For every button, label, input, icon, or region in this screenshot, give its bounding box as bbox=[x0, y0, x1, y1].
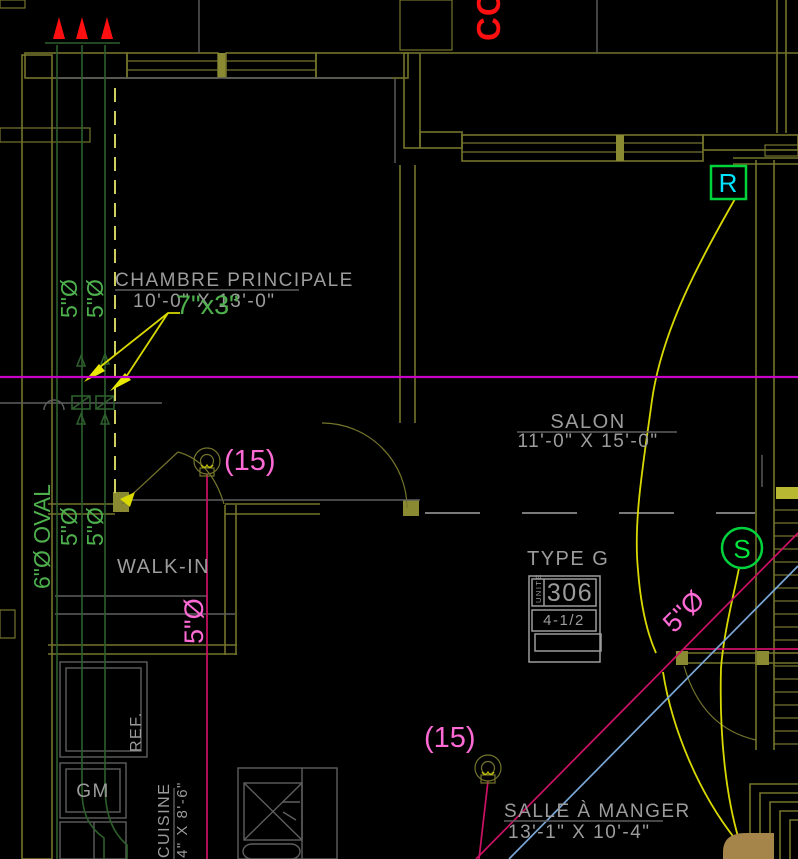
oval-duct-label: 6"Ø OVAL bbox=[29, 484, 55, 589]
door-arc-chambre bbox=[322, 423, 407, 508]
window-right-band bbox=[462, 135, 703, 161]
wall-nib-bright bbox=[776, 487, 798, 499]
walkin-name: WALK-IN bbox=[117, 556, 210, 578]
salon-name: SALON bbox=[550, 411, 625, 433]
cuisine-name: CUISINE bbox=[156, 783, 173, 858]
unit-number: 306 bbox=[547, 579, 593, 607]
flex-duct-from-R bbox=[637, 199, 735, 653]
dishwasher-symbol bbox=[244, 783, 302, 840]
window-top-2 bbox=[226, 53, 316, 78]
cad-floor-plan-canvas[interactable]: R S UNITÉ 306 4-1/2 TYPE G CHAMBRE PRINC… bbox=[0, 0, 798, 859]
leader-arrowhead-1 bbox=[84, 364, 105, 382]
datum-arc bbox=[44, 400, 64, 410]
cuisine-dims: 4" X 8'-6" bbox=[174, 781, 191, 858]
sink bbox=[243, 844, 300, 859]
count-label-1: (15) bbox=[224, 445, 276, 477]
pink-annotations: (15) (15) 5"Ø 5"Ø bbox=[179, 445, 710, 754]
fridge-label: REF. bbox=[128, 711, 145, 752]
kitchen-fixtures bbox=[60, 662, 337, 859]
door-jamb-salle-l bbox=[676, 651, 688, 665]
shaft-box bbox=[400, 0, 452, 50]
unit-hatch-bar bbox=[535, 634, 601, 651]
riser-line-2 bbox=[82, 45, 104, 859]
floor-plan-drawing: R S UNITÉ 306 4-1/2 TYPE G CHAMBRE PRINC… bbox=[0, 0, 798, 859]
salle-dims: 13'-1" X 10'-4" bbox=[508, 822, 651, 843]
wall-fire-strip bbox=[0, 128, 90, 142]
wall-top-left bbox=[25, 53, 127, 78]
chambre-inner-line bbox=[55, 78, 395, 163]
walkin-duct-label: 5"Ø bbox=[179, 598, 209, 644]
door-jamb-salle-r bbox=[755, 651, 769, 665]
wall-corner-down bbox=[404, 53, 420, 148]
door-jamb-chambre bbox=[403, 500, 419, 516]
window-mullion bbox=[218, 53, 226, 78]
red-riser-arrows bbox=[53, 17, 113, 39]
window-top-1 bbox=[127, 53, 218, 78]
wall-top-right bbox=[703, 135, 798, 150]
riser-label-4: 5"Ø bbox=[82, 507, 108, 546]
supply-tag-letter: S bbox=[733, 534, 750, 564]
salle-name: SALLE À MANGER bbox=[504, 801, 691, 822]
co-riser-label: CO bbox=[470, 0, 507, 41]
unit-label: UNITÉ bbox=[534, 573, 543, 603]
unit-fraction: 4-1/2 bbox=[543, 612, 585, 629]
wall-left-piece bbox=[0, 610, 15, 638]
riser-label-1: 5"Ø bbox=[56, 279, 82, 318]
wall-stub bbox=[420, 132, 462, 148]
counter-box bbox=[238, 768, 337, 859]
count-label-2: (15) bbox=[424, 722, 476, 754]
grid-lines-top bbox=[199, 0, 597, 53]
chambre-name: CHAMBRE PRINCIPALE bbox=[115, 270, 354, 291]
return-tag-symbol[interactable]: R bbox=[711, 166, 746, 199]
wall-r-tag bbox=[733, 158, 798, 164]
gm-label: GM bbox=[76, 781, 110, 802]
wall-left bbox=[22, 55, 52, 859]
grille-size-label: 7"x3" bbox=[176, 290, 239, 320]
wall-salle-top bbox=[683, 653, 798, 663]
wall-chambre-right bbox=[400, 165, 415, 423]
grille-leader-lines bbox=[100, 313, 180, 377]
riser-label-2: 5"Ø bbox=[82, 279, 108, 318]
unit-type-title: TYPE G bbox=[527, 548, 609, 570]
floor-grille-fan bbox=[723, 833, 774, 859]
sprinkler-head-2[interactable] bbox=[475, 755, 501, 783]
wall-walkin-bottom bbox=[48, 645, 237, 654]
riser-label-3: 5"Ø bbox=[56, 507, 82, 546]
unit-info-block: UNITÉ 306 4-1/2 TYPE G bbox=[527, 548, 609, 662]
wall-top-mid bbox=[316, 53, 408, 78]
wall-hatch-corner bbox=[0, 0, 25, 8]
doors bbox=[122, 423, 756, 740]
return-tag-letter: R bbox=[719, 168, 738, 198]
wall-walkin-right bbox=[225, 505, 236, 655]
salon-dims: 11'-0" X 15'-0" bbox=[517, 431, 658, 452]
